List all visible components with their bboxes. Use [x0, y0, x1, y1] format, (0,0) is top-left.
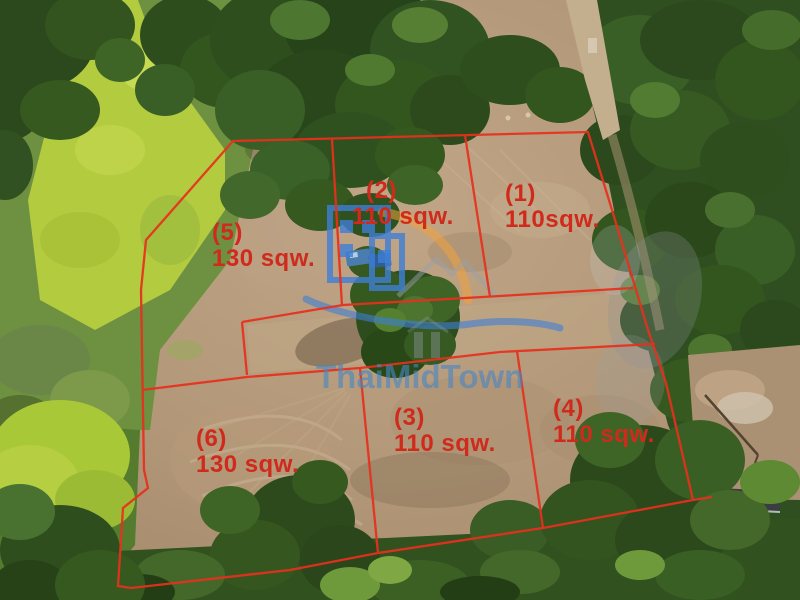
- aerial-photo: ThaiMidTown (1) 110sqw. (2) 110 sqw. (3)…: [0, 0, 800, 600]
- terrain-illustration: [0, 0, 800, 600]
